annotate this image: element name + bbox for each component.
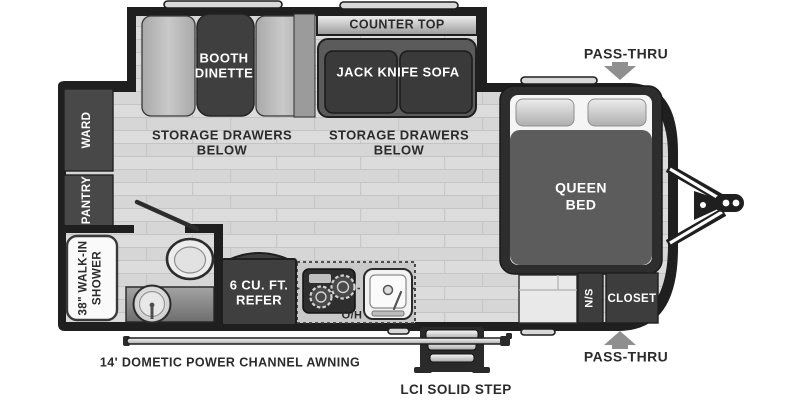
burner-icon (311, 287, 332, 308)
kitchen-faucet-icon (384, 286, 393, 295)
storage-drawers-left-label: STORAGE DRAWERS BELOW (152, 128, 292, 159)
coupler-hole (723, 200, 730, 207)
step-label: LCI SOLID STEP (400, 382, 511, 398)
floorplan-diagram: COUNTER TOP BOOTH DINETTE JACK KNIFE SOF… (0, 0, 800, 400)
awning-rod (127, 338, 507, 344)
burner-icon (332, 276, 355, 299)
step-foot (472, 367, 490, 373)
trailer-hitch (668, 168, 744, 244)
overhead-label: O/H (342, 310, 363, 323)
counter-top-label: COUNTER TOP (349, 18, 444, 33)
pantry-label: PANTRY (81, 176, 95, 224)
pass-thru-arrow-up-icon (604, 331, 636, 349)
shower-label: 38" WALK-IN SHOWER (77, 240, 104, 315)
coupler-hole (733, 200, 740, 207)
nightstand-label: N/S (584, 288, 597, 308)
sofa-cushion-left (325, 51, 397, 113)
ward-label: WARD (81, 112, 95, 149)
jack-knife-sofa-label: JACK KNIFE SOFA (336, 64, 459, 79)
entry-step (414, 327, 490, 373)
storage-drawers-right-label: STORAGE DRAWERS BELOW (329, 128, 469, 159)
pillow-icon (516, 99, 574, 126)
queen-bed-label: QUEEN BED (555, 179, 607, 212)
bath-faucet-dot (150, 303, 155, 308)
divider-cabinet (294, 14, 315, 117)
dinette-bench-left (142, 16, 195, 116)
floorplan-drawing (0, 0, 800, 400)
closet-label: CLOSET (607, 293, 656, 307)
toilet-seat (175, 247, 206, 273)
awning-label: 14' DOMETIC POWER CHANNEL AWNING (100, 356, 360, 371)
pass-thru-top-label: PASS-THRU (584, 46, 668, 63)
foot-dresser (519, 275, 577, 323)
step-tread (430, 354, 474, 362)
bathroom-wall (58, 225, 134, 233)
window-icon (388, 328, 409, 334)
window-icon (164, 1, 282, 8)
sofa-cushion-right (400, 51, 472, 113)
window-icon (340, 2, 458, 9)
stove-knob-panel (309, 274, 331, 283)
pillow-icon (588, 99, 646, 126)
refrigerator-label: 6 CU. FT. REFER (230, 278, 289, 309)
window-icon (521, 77, 597, 84)
booth-dinette-label: BOOTH DINETTE (195, 51, 253, 82)
step-foot (414, 367, 432, 373)
kitchen-sink-bar (372, 311, 404, 316)
pass-thru-arrow-down-icon (604, 62, 636, 80)
window-icon (521, 329, 555, 335)
pass-thru-bottom-label: PASS-THRU (584, 349, 668, 366)
hitch-plate-hole (700, 202, 706, 208)
awning-end-cap (500, 336, 510, 346)
